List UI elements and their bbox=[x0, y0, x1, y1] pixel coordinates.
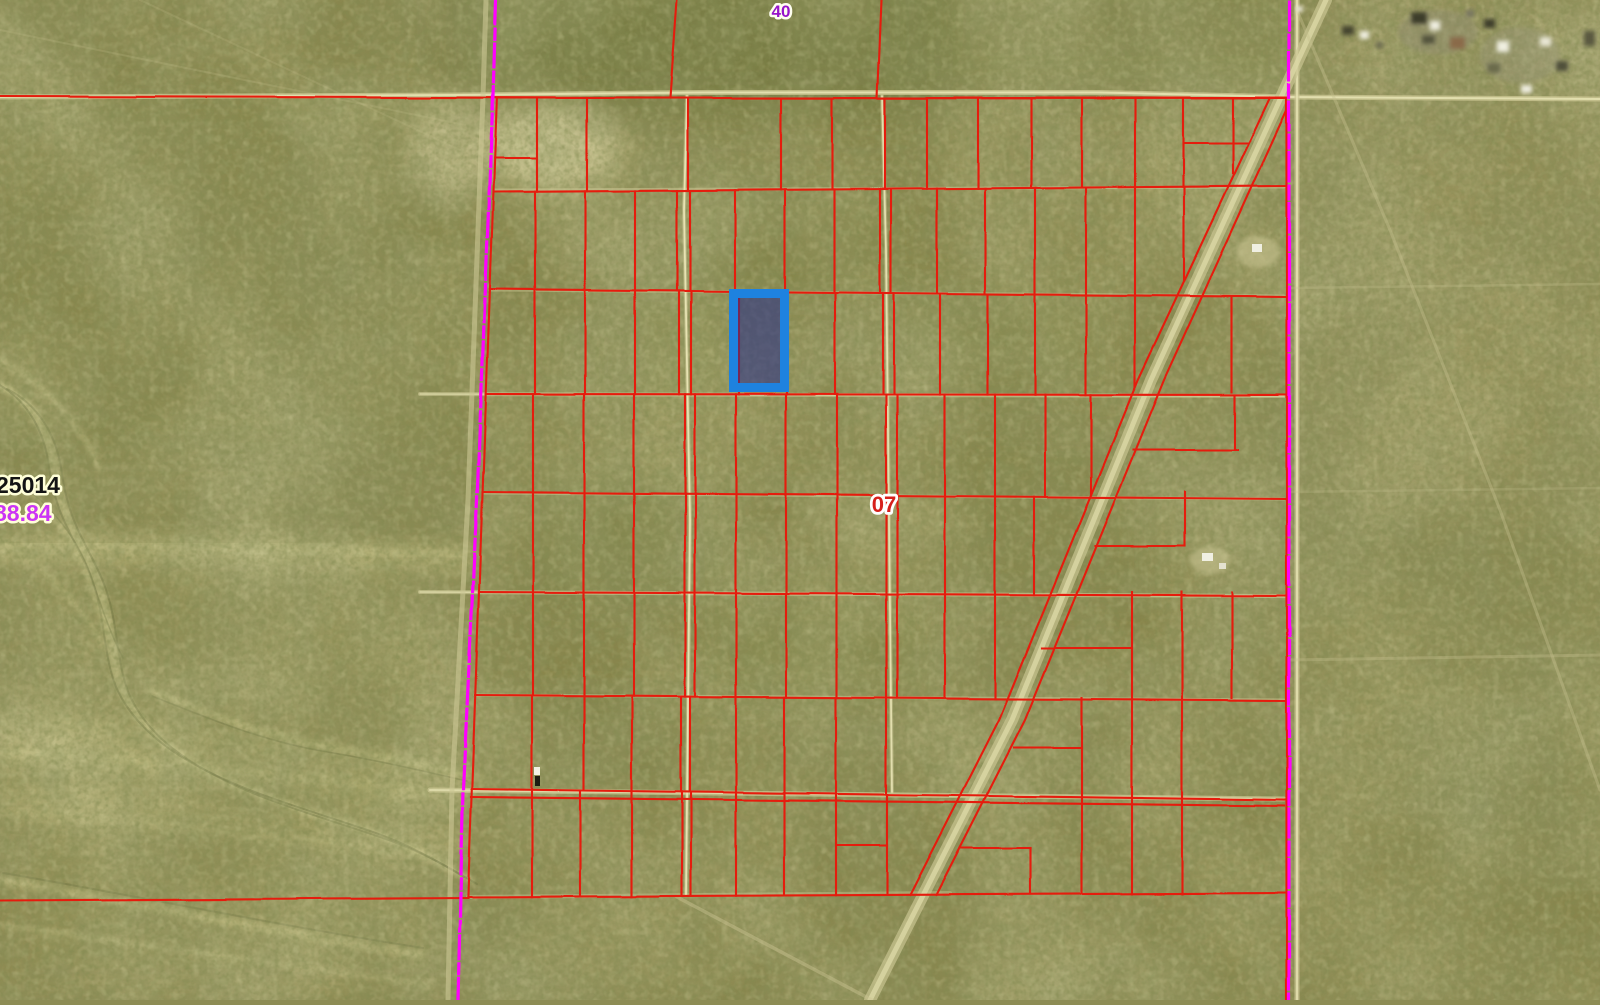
svg-text:88.84: 88.84 bbox=[0, 500, 52, 526]
svg-text:25014: 25014 bbox=[0, 472, 60, 498]
svg-text:40: 40 bbox=[772, 2, 791, 21]
svg-text:07: 07 bbox=[872, 492, 896, 517]
